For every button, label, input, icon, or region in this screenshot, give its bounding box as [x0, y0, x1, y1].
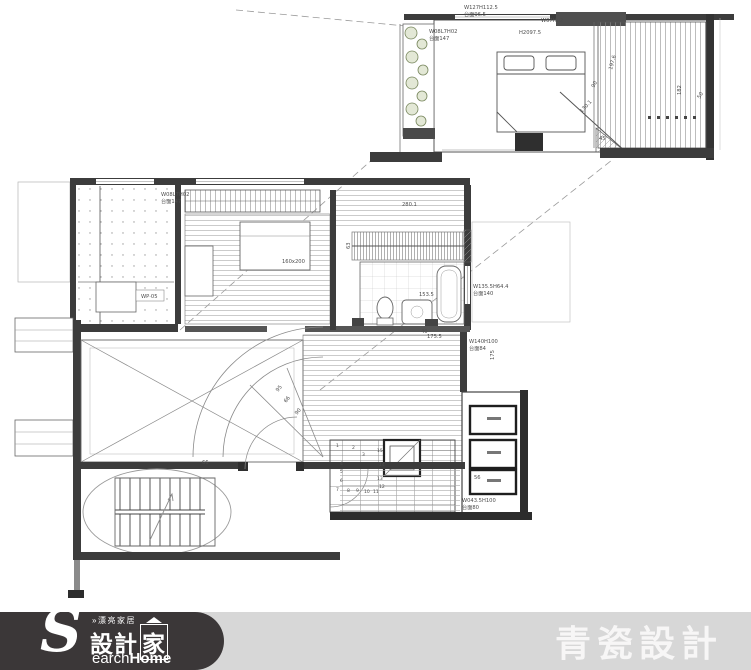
plan-label: 台面80 [462, 503, 479, 511]
left-rooms [78, 186, 174, 324]
plan-label: W043.5H100 [462, 498, 496, 504]
logo-brand-en-bold: Home [130, 650, 172, 667]
wall [600, 148, 714, 158]
plan-label: W127H112.5 [464, 5, 498, 11]
plan-label: 175.5 [427, 334, 442, 340]
plan-label: 6 [340, 478, 343, 484]
plan-label: 台面147 [161, 197, 181, 205]
plan-label: 9 [356, 488, 359, 494]
floor-plan-drawing: W127H112.5台面96.5W07H02H2097.5W08L7H02台面1… [0, 0, 751, 612]
plan-label: H2097.5 [519, 30, 541, 36]
balcony-planter [400, 24, 435, 152]
left-balconies [15, 318, 73, 456]
plan-label: 2 [352, 445, 355, 451]
footer-bar: S »漂亮家居 設計家 earchHome 青瓷設計 [0, 612, 751, 670]
toilet [377, 297, 393, 319]
cabinet-block [515, 133, 543, 151]
plan-label: 182 [677, 85, 683, 95]
plan-label: W08L7H02 [429, 29, 457, 35]
logo-brand-en-rest: earch [92, 650, 130, 667]
plan-label: 5 [340, 469, 343, 475]
studio-name: 青瓷設計 [555, 615, 723, 667]
plan-label: 280.1 [402, 202, 417, 208]
desk [185, 246, 213, 296]
plan-label: 1 [336, 443, 339, 449]
plan-label: 45 [599, 136, 606, 142]
bed [497, 52, 585, 132]
plan-label: 3 [362, 452, 365, 458]
plan-label: W08L7H02 [161, 192, 189, 198]
oval-staircase [83, 469, 231, 555]
plan-label: 56 [474, 475, 481, 481]
plan-label: 153.5 [419, 292, 434, 298]
lower-floor-plan [15, 318, 532, 598]
plan-label: 12 [379, 484, 385, 490]
plan-label: 11 [373, 489, 379, 495]
bathtub [437, 266, 461, 322]
plan-label: 14 [379, 462, 385, 468]
wall [370, 152, 442, 162]
plan-label: 10 [364, 489, 370, 495]
living-room-void [81, 340, 303, 462]
plan-label: 4 [340, 461, 343, 467]
bathroom [360, 262, 464, 325]
searchhome-logo: S »漂亮家居 設計家 earchHome [0, 612, 224, 670]
plan-label: 台面147 [429, 34, 449, 42]
plan-label: 8 [347, 488, 350, 494]
page: W127H112.5台面96.5W07H02H2097.5W08L7H02台面1… [0, 0, 751, 670]
plan-label: 63 [346, 242, 352, 249]
wall [706, 14, 714, 160]
middle-floor-plan [18, 178, 570, 332]
plan-label: 15 [377, 448, 383, 454]
plan-label: W07H02 [541, 18, 563, 24]
plan-label: 7 [336, 487, 339, 493]
logo-brand-en: earchHome [92, 650, 171, 667]
plan-label: 台面96.5 [464, 10, 486, 18]
plan-label: WP·05 [141, 294, 158, 300]
plan-label: 台面84 [469, 344, 487, 352]
wardrobe-closet [594, 22, 706, 148]
plan-label: 13 [377, 476, 383, 482]
plan-label: 160x200 [282, 259, 305, 265]
logo-s-glyph: S [40, 612, 82, 660]
plan-label: 66 [202, 460, 209, 466]
plan-label: W135.5H64.4 [473, 284, 509, 290]
hall-floor [336, 190, 464, 230]
bedroom [185, 214, 330, 324]
plan-label: 台面140 [473, 289, 493, 297]
plan-label: W140H100 [469, 339, 498, 345]
plan-label: 175 [490, 350, 496, 360]
